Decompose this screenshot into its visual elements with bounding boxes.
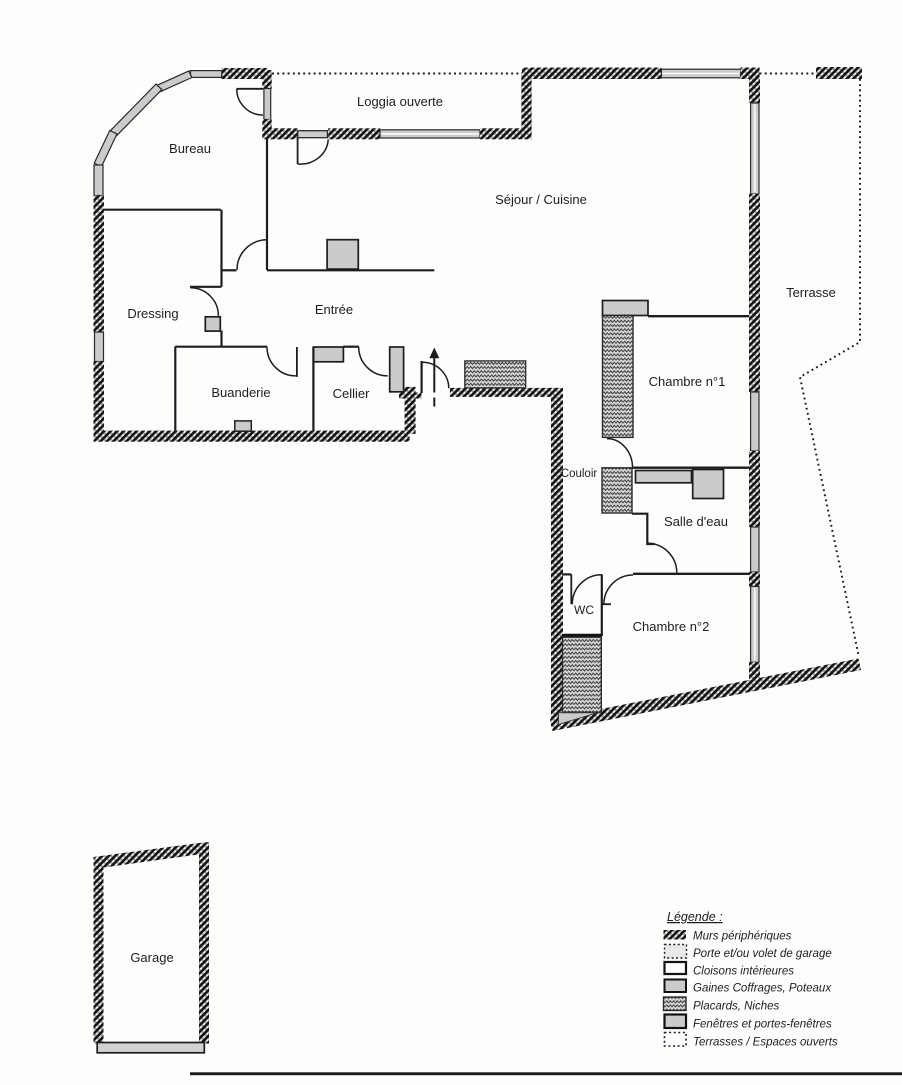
svg-text:Loggia ouverte: Loggia ouverte (357, 94, 443, 109)
svg-text:Cellier: Cellier (333, 386, 371, 401)
svg-text:Placards, Niches: Placards, Niches (693, 1001, 780, 1013)
svg-text:Couloir: Couloir (561, 468, 598, 480)
svg-text:Murs périphériques: Murs périphériques (693, 931, 792, 943)
svg-text:Fenêtres et portes-fenêtres: Fenêtres et portes-fenêtres (693, 1019, 832, 1031)
svg-text:Salle d'eau: Salle d'eau (664, 514, 728, 529)
svg-text:Séjour / Cuisine: Séjour / Cuisine (495, 192, 587, 207)
svg-text:Légende :: Légende : (667, 910, 723, 924)
svg-text:Entrée: Entrée (315, 302, 353, 317)
svg-text:Buanderie: Buanderie (211, 385, 270, 400)
svg-text:Chambre n°1: Chambre n°1 (649, 374, 726, 389)
svg-text:Terrasses / Espaces ouverts: Terrasses / Espaces ouverts (693, 1037, 838, 1049)
svg-text:Terrasse: Terrasse (786, 285, 836, 300)
svg-text:Bureau: Bureau (169, 141, 211, 156)
svg-text:Dressing: Dressing (127, 306, 178, 321)
svg-text:Cloisons intérieures: Cloisons intérieures (693, 966, 794, 978)
svg-text:Chambre n°2: Chambre n°2 (633, 619, 710, 634)
svg-text:Gaines Coffrages, Poteaux: Gaines Coffrages, Poteaux (693, 983, 832, 995)
svg-text:Garage: Garage (130, 950, 173, 965)
svg-text:Porte et/ou volet de garage: Porte et/ou volet de garage (693, 948, 832, 960)
svg-text:WC: WC (574, 603, 594, 617)
